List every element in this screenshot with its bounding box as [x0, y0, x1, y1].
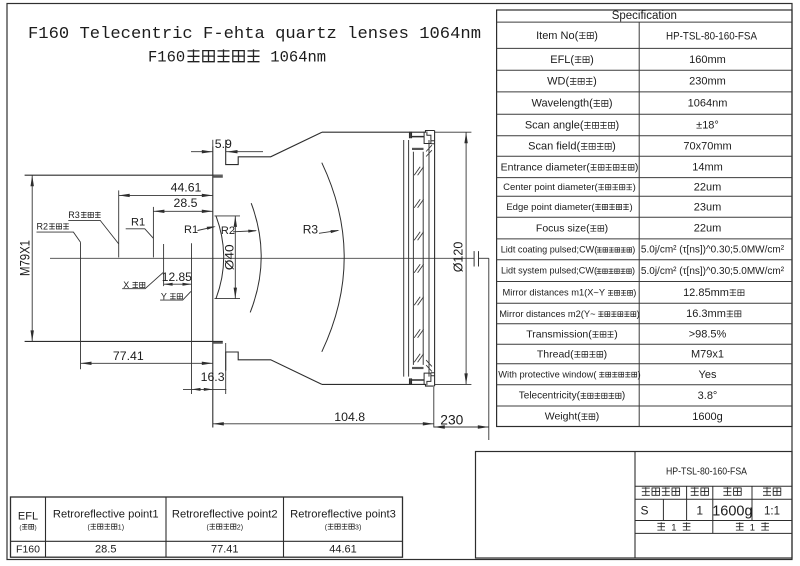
- svg-text:R2: R2: [221, 225, 235, 237]
- svg-text:Mirror distances m2(Y~: Mirror distances m2(Y~: [499, 309, 596, 319]
- svg-text:±18°: ±18°: [696, 120, 719, 132]
- svg-text:Thread(: Thread(: [537, 348, 574, 360]
- svg-text:): ): [633, 288, 636, 298]
- svg-text:>98.5%: >98.5%: [689, 329, 727, 341]
- svg-text:Scan field(: Scan field(: [528, 141, 580, 153]
- svg-text:Lidt coating pulsed;CW(: Lidt coating pulsed;CW(: [501, 244, 598, 254]
- svg-text:): ): [35, 525, 37, 532]
- svg-text:): ): [633, 182, 636, 193]
- svg-text:Transmission(: Transmission(: [526, 329, 592, 341]
- svg-text:): ): [637, 309, 640, 319]
- svg-text:): ): [609, 98, 613, 110]
- svg-text:12.85: 12.85: [162, 270, 192, 284]
- svg-text:1600g: 1600g: [692, 411, 723, 423]
- svg-text:EFL: EFL: [18, 511, 38, 523]
- svg-text:M79x1: M79x1: [691, 349, 724, 361]
- svg-text:5.0j/cm² (τ[ns])^0.30;5.0MW/cm: 5.0j/cm² (τ[ns])^0.30;5.0MW/cm²: [641, 245, 785, 256]
- svg-text:F160: F160: [148, 49, 185, 67]
- svg-text:R3: R3: [68, 210, 80, 220]
- svg-text:R3: R3: [303, 222, 319, 236]
- svg-text:22um: 22um: [694, 223, 722, 235]
- svg-text:22um: 22um: [694, 182, 722, 194]
- svg-text:77.41: 77.41: [113, 349, 144, 363]
- svg-text:): ): [594, 30, 598, 42]
- svg-text:5.0j/cm² (τ[ns])^0.30;5.0MW/cm: 5.0j/cm² (τ[ns])^0.30;5.0MW/cm²: [641, 266, 785, 277]
- svg-text:Center point diameter(: Center point diameter(: [503, 182, 598, 193]
- svg-text:Item No(: Item No(: [536, 30, 579, 42]
- svg-text:): ): [614, 329, 618, 341]
- svg-text:5.9: 5.9: [215, 137, 232, 151]
- svg-text:Wavelength(: Wavelength(: [531, 98, 593, 110]
- svg-text:Focus size(: Focus size(: [536, 223, 590, 235]
- svg-text:Scan angle(: Scan angle(: [525, 120, 584, 132]
- svg-text:1: 1: [666, 523, 682, 534]
- svg-text:Edge point diameter(: Edge point diameter(: [506, 202, 595, 213]
- svg-text:1064nm: 1064nm: [261, 49, 326, 67]
- svg-text:Yes: Yes: [699, 369, 717, 381]
- svg-text:12.85mm: 12.85mm: [683, 287, 729, 299]
- svg-text:HP-TSL-80-160-FSA: HP-TSL-80-160-FSA: [666, 466, 747, 478]
- svg-text:): ): [590, 54, 594, 66]
- svg-text:With protective window(: With protective window(: [498, 369, 597, 379]
- svg-text:1): 1): [118, 525, 124, 532]
- svg-text:Weight(: Weight(: [545, 411, 581, 423]
- svg-text:): ): [604, 348, 608, 360]
- svg-text:2): 2): [237, 525, 243, 532]
- svg-text:R2: R2: [37, 222, 49, 232]
- svg-text:Ø40: Ø40: [223, 244, 237, 270]
- svg-text:14mm: 14mm: [692, 162, 723, 174]
- svg-text:): ): [616, 120, 620, 132]
- svg-text:): ): [630, 202, 633, 213]
- svg-text:1064nm: 1064nm: [688, 98, 728, 110]
- svg-text:): ): [632, 266, 635, 276]
- svg-text:): ): [632, 244, 635, 254]
- svg-text:28.5: 28.5: [95, 544, 116, 556]
- svg-text:44.61: 44.61: [171, 181, 202, 195]
- svg-text:Lidt system pulsed;CW(: Lidt system pulsed;CW(: [501, 266, 597, 276]
- svg-text:): ): [593, 76, 597, 88]
- svg-text:104.8: 104.8: [334, 410, 365, 424]
- svg-text:M79X1: M79X1: [17, 240, 33, 276]
- svg-text:3): 3): [355, 525, 361, 532]
- svg-text:Mirror distances m1(X~Y: Mirror distances m1(X~Y: [503, 288, 606, 298]
- svg-text:EFL(: EFL(: [550, 54, 574, 66]
- svg-text:R1: R1: [131, 217, 145, 229]
- svg-text:230: 230: [440, 413, 463, 428]
- svg-text:70x70mm: 70x70mm: [683, 141, 731, 153]
- svg-text:1: 1: [744, 523, 760, 534]
- svg-text:3.8°: 3.8°: [698, 390, 718, 402]
- svg-text:S: S: [640, 504, 648, 518]
- svg-text:WD(: WD(: [547, 76, 569, 88]
- svg-text:28.5: 28.5: [174, 196, 198, 210]
- svg-text:77.41: 77.41: [211, 544, 239, 556]
- svg-text:): ): [605, 223, 609, 235]
- svg-text:Retroreflective point1: Retroreflective point1: [53, 509, 159, 521]
- svg-text:): ): [612, 141, 616, 153]
- svg-text:1600g: 1600g: [712, 504, 752, 520]
- svg-text:): ): [638, 369, 641, 379]
- svg-text:HP-TSL-80-160-FSA: HP-TSL-80-160-FSA: [666, 31, 758, 43]
- svg-text:160mm: 160mm: [689, 54, 726, 66]
- svg-text:16.3mm: 16.3mm: [686, 308, 726, 320]
- svg-text:230mm: 230mm: [689, 76, 726, 88]
- svg-text:Retroreflective point2: Retroreflective point2: [172, 509, 278, 521]
- svg-text:): ): [622, 391, 625, 402]
- svg-text:44.61: 44.61: [329, 544, 357, 556]
- svg-text:R1: R1: [184, 224, 198, 236]
- svg-text:1: 1: [696, 504, 703, 518]
- svg-text:Ø120: Ø120: [451, 242, 465, 273]
- svg-text:23um: 23um: [694, 201, 722, 213]
- svg-text:F160 Telecentric F-ehta quartz: F160 Telecentric F-ehta quartz lenses 10…: [28, 25, 481, 44]
- svg-text:Retroreflective point3: Retroreflective point3: [290, 509, 396, 521]
- svg-text:Specification: Specification: [612, 10, 677, 22]
- svg-text:): ): [596, 411, 600, 423]
- svg-text:): ): [635, 161, 639, 173]
- svg-text:F160: F160: [16, 544, 40, 556]
- svg-text:Entrance diameter(: Entrance diameter(: [501, 161, 591, 173]
- svg-text:Telecentricity(: Telecentricity(: [519, 391, 581, 402]
- svg-text:1:1: 1:1: [764, 506, 780, 518]
- svg-text:16.3: 16.3: [201, 370, 225, 384]
